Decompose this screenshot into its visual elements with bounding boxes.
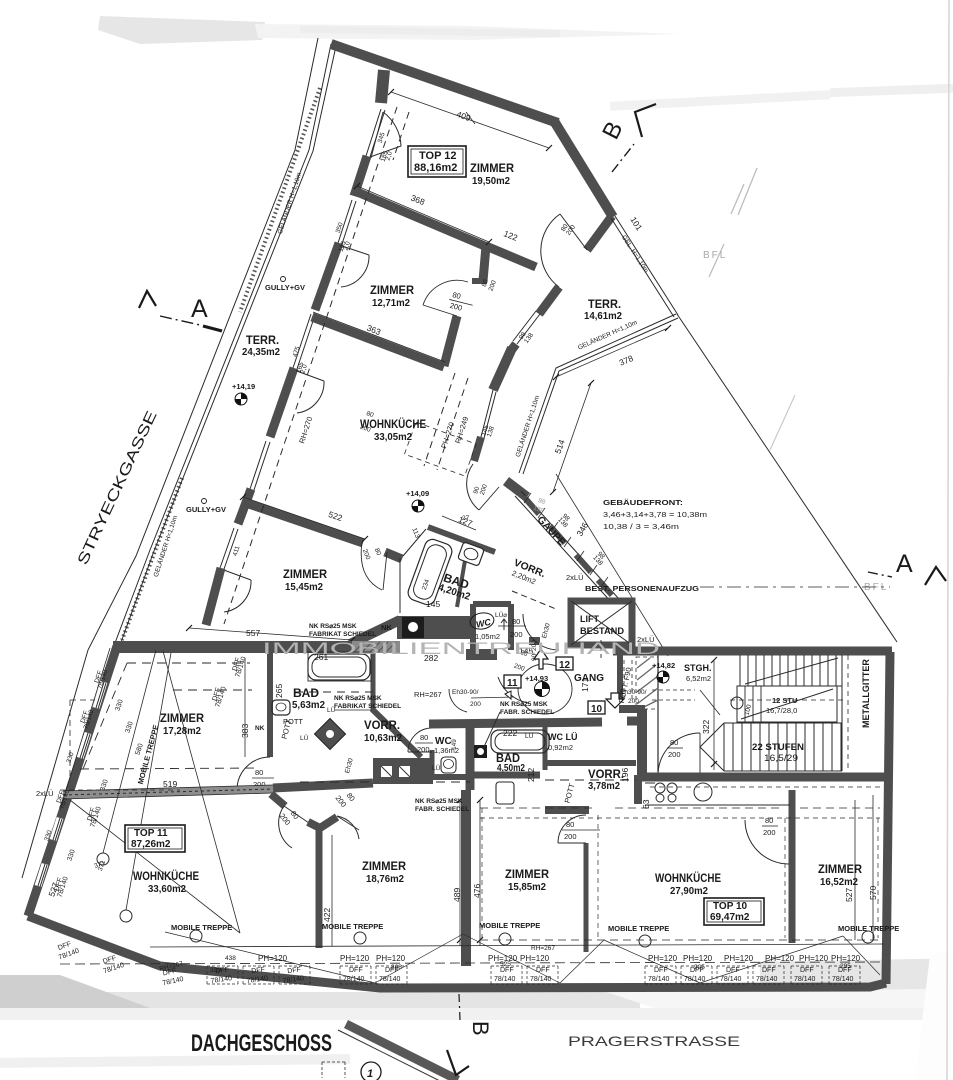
svg-text:222: 222 bbox=[503, 728, 517, 738]
svg-text:TOP 11: TOP 11 bbox=[134, 828, 168, 839]
svg-text:LÜ: LÜ bbox=[432, 764, 441, 772]
svg-text:LÜ: LÜ bbox=[525, 732, 534, 740]
svg-text:78/140: 78/140 bbox=[494, 976, 516, 983]
svg-text:69,47m2: 69,47m2 bbox=[710, 912, 750, 923]
svg-text:GULLY+GV: GULLY+GV bbox=[186, 505, 226, 514]
svg-text:24,35m2: 24,35m2 bbox=[242, 347, 280, 358]
svg-text:NK: NK bbox=[255, 725, 265, 732]
svg-text:200: 200 bbox=[628, 698, 639, 705]
svg-text:200: 200 bbox=[417, 745, 430, 754]
svg-text:78/140: 78/140 bbox=[684, 976, 706, 983]
svg-text:476: 476 bbox=[472, 884, 482, 898]
svg-text:PH=120: PH=120 bbox=[799, 954, 829, 963]
svg-text:LÜ⌀: LÜ⌀ bbox=[495, 611, 507, 619]
svg-text:+14,19: +14,19 bbox=[232, 382, 255, 391]
svg-text:10: 10 bbox=[591, 704, 603, 715]
svg-text:489: 489 bbox=[452, 888, 462, 902]
svg-text:422: 422 bbox=[322, 908, 332, 922]
svg-text:200: 200 bbox=[668, 750, 681, 759]
svg-text:FABR. SCHIEDEL: FABR. SCHIEDEL bbox=[500, 709, 554, 716]
svg-text:IMMOBILIENTREUHAND: IMMOBILIENTREUHAND bbox=[262, 639, 660, 658]
svg-text:78/140: 78/140 bbox=[756, 976, 778, 983]
svg-text:PH=120: PH=120 bbox=[765, 954, 795, 963]
svg-text:TOP 10: TOP 10 bbox=[713, 901, 748, 912]
svg-text:78/140: 78/140 bbox=[379, 976, 401, 983]
svg-text:PH=120: PH=120 bbox=[258, 954, 288, 963]
svg-text:A: A bbox=[896, 550, 913, 578]
svg-text:78/140: 78/140 bbox=[648, 976, 670, 983]
svg-text:NK RS⌀25 MSK: NK RS⌀25 MSK bbox=[415, 798, 463, 805]
svg-text:10,63m2: 10,63m2 bbox=[364, 733, 402, 744]
svg-text:ZIMMER: ZIMMER bbox=[160, 711, 204, 725]
svg-text:519: 519 bbox=[163, 779, 177, 789]
svg-text:PH=120: PH=120 bbox=[724, 954, 754, 963]
svg-text:1,36m2: 1,36m2 bbox=[434, 746, 459, 755]
svg-text:GULLY+GV: GULLY+GV bbox=[265, 283, 305, 292]
svg-text:4,50m2: 4,50m2 bbox=[497, 763, 525, 774]
svg-text:RH=267: RH=267 bbox=[414, 690, 442, 699]
svg-text:145: 145 bbox=[426, 599, 440, 609]
svg-text:POTT: POTT bbox=[283, 717, 303, 726]
svg-text:WOHNKÜCHE: WOHNKÜCHE bbox=[133, 868, 199, 883]
svg-text:78/140: 78/140 bbox=[530, 976, 552, 983]
svg-text:VORR.: VORR. bbox=[364, 718, 400, 732]
svg-text:LIFT: LIFT bbox=[580, 614, 599, 624]
svg-text:PH=120: PH=120 bbox=[340, 954, 370, 963]
svg-text:DFF: DFF bbox=[800, 967, 814, 974]
svg-text:RH=267: RH=267 bbox=[531, 945, 555, 952]
svg-text:2xLÜ: 2xLÜ bbox=[36, 789, 54, 798]
svg-text:200: 200 bbox=[510, 630, 523, 639]
svg-text:MOBILE TREPPE: MOBILE TREPPE bbox=[608, 924, 669, 933]
svg-text:27: 27 bbox=[462, 515, 470, 522]
svg-text:TOP 12: TOP 12 bbox=[419, 150, 457, 162]
svg-text:BFL: BFL bbox=[703, 250, 727, 261]
svg-text:BEST. PERSONENAUFZUG: BEST. PERSONENAUFZUG bbox=[585, 584, 699, 593]
svg-text:22 STUFEN: 22 STUFEN bbox=[752, 742, 804, 753]
svg-text:Eh30-90/: Eh30-90/ bbox=[452, 689, 479, 696]
svg-text:Eh30-90/: Eh30-90/ bbox=[620, 689, 647, 696]
svg-text:NK: NK bbox=[381, 623, 392, 632]
svg-text:12,71m2: 12,71m2 bbox=[372, 298, 410, 309]
svg-text:570: 570 bbox=[868, 886, 878, 900]
svg-text:DACHGESCHOSS: DACHGESCHOSS bbox=[191, 1030, 332, 1057]
svg-text:78/140: 78/140 bbox=[343, 976, 365, 983]
svg-text:12: 12 bbox=[559, 660, 571, 671]
svg-text:WOHNKÜCHE: WOHNKÜCHE bbox=[655, 870, 721, 885]
svg-text:TERR.: TERR. bbox=[588, 297, 621, 311]
svg-text:PH=120: PH=120 bbox=[648, 954, 678, 963]
svg-text:NK RS⌀25 MSK: NK RS⌀25 MSK bbox=[334, 695, 382, 702]
svg-text:DFF: DFF bbox=[654, 967, 668, 974]
svg-text:80: 80 bbox=[765, 816, 773, 825]
svg-text:DFF: DFF bbox=[726, 967, 740, 974]
svg-text:33,05m2: 33,05m2 bbox=[374, 432, 412, 443]
svg-text:PRAGERSTRASSE: PRAGERSTRASSE bbox=[568, 1033, 740, 1049]
svg-text:0,92m2: 0,92m2 bbox=[548, 743, 573, 752]
svg-text:33,60m2: 33,60m2 bbox=[148, 884, 186, 895]
svg-text:200: 200 bbox=[564, 832, 577, 841]
svg-text:15,45m2: 15,45m2 bbox=[285, 582, 323, 593]
svg-text:3,46+3,14+3,78 = 10,38m: 3,46+3,14+3,78 = 10,38m bbox=[603, 510, 707, 519]
svg-text:ZIMMER: ZIMMER bbox=[370, 283, 414, 297]
svg-text:GEBÄUDEFRONT:: GEBÄUDEFRONT: bbox=[603, 498, 683, 507]
svg-text:18,76m2: 18,76m2 bbox=[366, 874, 404, 885]
svg-text:WC LÜ: WC LÜ bbox=[548, 732, 578, 742]
svg-text:ZIMMER: ZIMMER bbox=[362, 859, 406, 873]
svg-text:FABR. SCHIEDEL: FABR. SCHIEDEL bbox=[415, 806, 469, 813]
svg-text:ZIMMER: ZIMMER bbox=[470, 161, 514, 175]
svg-text:78/140: 78/140 bbox=[794, 976, 816, 983]
svg-text:78/140: 78/140 bbox=[720, 976, 742, 983]
svg-text:PH=120: PH=120 bbox=[831, 954, 861, 963]
svg-text:MOBILE TREPPE: MOBILE TREPPE bbox=[171, 923, 232, 932]
svg-text:+14,82: +14,82 bbox=[652, 661, 675, 670]
svg-text:80: 80 bbox=[255, 768, 263, 777]
svg-text:MOBILE TREPPE: MOBILE TREPPE bbox=[479, 921, 540, 930]
svg-text:+14,09: +14,09 bbox=[406, 489, 429, 498]
svg-text:80: 80 bbox=[670, 738, 678, 747]
svg-text:BFL: BFL bbox=[864, 582, 888, 593]
svg-text:80: 80 bbox=[566, 820, 574, 829]
svg-text:LÜ: LÜ bbox=[327, 706, 336, 714]
svg-text:3,78m2: 3,78m2 bbox=[588, 781, 620, 792]
svg-text:NK RS⌀25 MSK: NK RS⌀25 MSK bbox=[500, 701, 548, 708]
svg-text:6,52m2: 6,52m2 bbox=[686, 674, 711, 683]
svg-text:557: 557 bbox=[246, 628, 260, 638]
svg-text:DFF: DFF bbox=[536, 967, 550, 974]
svg-text:WOHNKÜCHE: WOHNKÜCHE bbox=[360, 416, 426, 431]
svg-text:80: 80 bbox=[512, 617, 520, 626]
svg-text:17,28m2: 17,28m2 bbox=[163, 726, 201, 737]
svg-text:12 STU: 12 STU bbox=[772, 696, 797, 705]
svg-text:196: 196 bbox=[620, 768, 630, 782]
svg-text:80: 80 bbox=[420, 733, 428, 742]
svg-text:16,7/28,0: 16,7/28,0 bbox=[766, 706, 797, 715]
svg-text:63: 63 bbox=[641, 799, 651, 809]
svg-text:383: 383 bbox=[240, 724, 250, 738]
svg-text:DFF: DFF bbox=[762, 967, 776, 974]
svg-text:ZIMMER: ZIMMER bbox=[505, 867, 549, 881]
svg-text:TERR.: TERR. bbox=[246, 333, 279, 347]
svg-text:LÜ: LÜ bbox=[300, 734, 309, 742]
svg-text:212: 212 bbox=[526, 768, 536, 782]
svg-text:PH=120: PH=120 bbox=[520, 954, 550, 963]
svg-text:ZIMMER: ZIMMER bbox=[283, 567, 327, 581]
svg-text:DFF: DFF bbox=[349, 967, 363, 974]
svg-text:87,26m2: 87,26m2 bbox=[131, 839, 171, 850]
svg-text:1: 1 bbox=[367, 1068, 373, 1080]
svg-text:438: 438 bbox=[225, 955, 236, 962]
svg-text:88,16m2: 88,16m2 bbox=[414, 162, 457, 174]
svg-text:PH=120: PH=120 bbox=[683, 954, 713, 963]
svg-text:16,5/29: 16,5/29 bbox=[764, 753, 798, 764]
svg-text:DFF: DFF bbox=[838, 967, 852, 974]
svg-text:FABRIKAT SCHIEDEL: FABRIKAT SCHIEDEL bbox=[309, 631, 376, 638]
svg-text:16,52m2: 16,52m2 bbox=[820, 877, 858, 888]
svg-text:MOBILE TREPPE: MOBILE TREPPE bbox=[322, 922, 383, 931]
svg-text:STGH.: STGH. bbox=[684, 663, 712, 673]
svg-text:FABRIKAT SCHIEDEL: FABRIKAT SCHIEDEL bbox=[334, 703, 401, 710]
svg-text:265: 265 bbox=[274, 684, 284, 698]
svg-text:14,61m2: 14,61m2 bbox=[584, 311, 622, 322]
svg-text:MOBILE TREPPE: MOBILE TREPPE bbox=[838, 924, 899, 933]
svg-text:A: A bbox=[191, 295, 208, 323]
svg-text:200: 200 bbox=[763, 828, 776, 837]
svg-text:DFF: DFF bbox=[690, 967, 704, 974]
svg-text:171: 171 bbox=[580, 678, 590, 692]
svg-text:78/140: 78/140 bbox=[832, 976, 854, 983]
svg-text:322: 322 bbox=[701, 720, 711, 734]
svg-text:B: B bbox=[468, 1021, 493, 1036]
svg-text:BESTAND: BESTAND bbox=[580, 626, 625, 636]
svg-text:19,50m2: 19,50m2 bbox=[472, 176, 510, 187]
svg-text:5,63m2: 5,63m2 bbox=[292, 700, 325, 711]
svg-text:BAD: BAD bbox=[293, 686, 319, 700]
svg-text:DFF: DFF bbox=[385, 967, 399, 974]
svg-text:PH=120: PH=120 bbox=[376, 954, 406, 963]
svg-text:15,85m2: 15,85m2 bbox=[508, 882, 546, 893]
svg-text:27,90m2: 27,90m2 bbox=[670, 886, 708, 897]
svg-text:10,38 / 3 = 3,46m: 10,38 / 3 = 3,46m bbox=[603, 522, 679, 531]
svg-text:527: 527 bbox=[844, 888, 854, 902]
svg-text:METALLGITTER: METALLGITTER bbox=[861, 659, 871, 728]
svg-text:200: 200 bbox=[470, 701, 481, 708]
svg-text:ZIMMER: ZIMMER bbox=[818, 862, 862, 876]
svg-text:DFF: DFF bbox=[500, 967, 514, 974]
svg-text:2xLÜ: 2xLÜ bbox=[566, 573, 584, 582]
svg-text:11: 11 bbox=[507, 678, 518, 689]
svg-text:NK RS⌀25 MSK: NK RS⌀25 MSK bbox=[309, 623, 357, 630]
svg-text:VORR.: VORR. bbox=[588, 767, 624, 781]
